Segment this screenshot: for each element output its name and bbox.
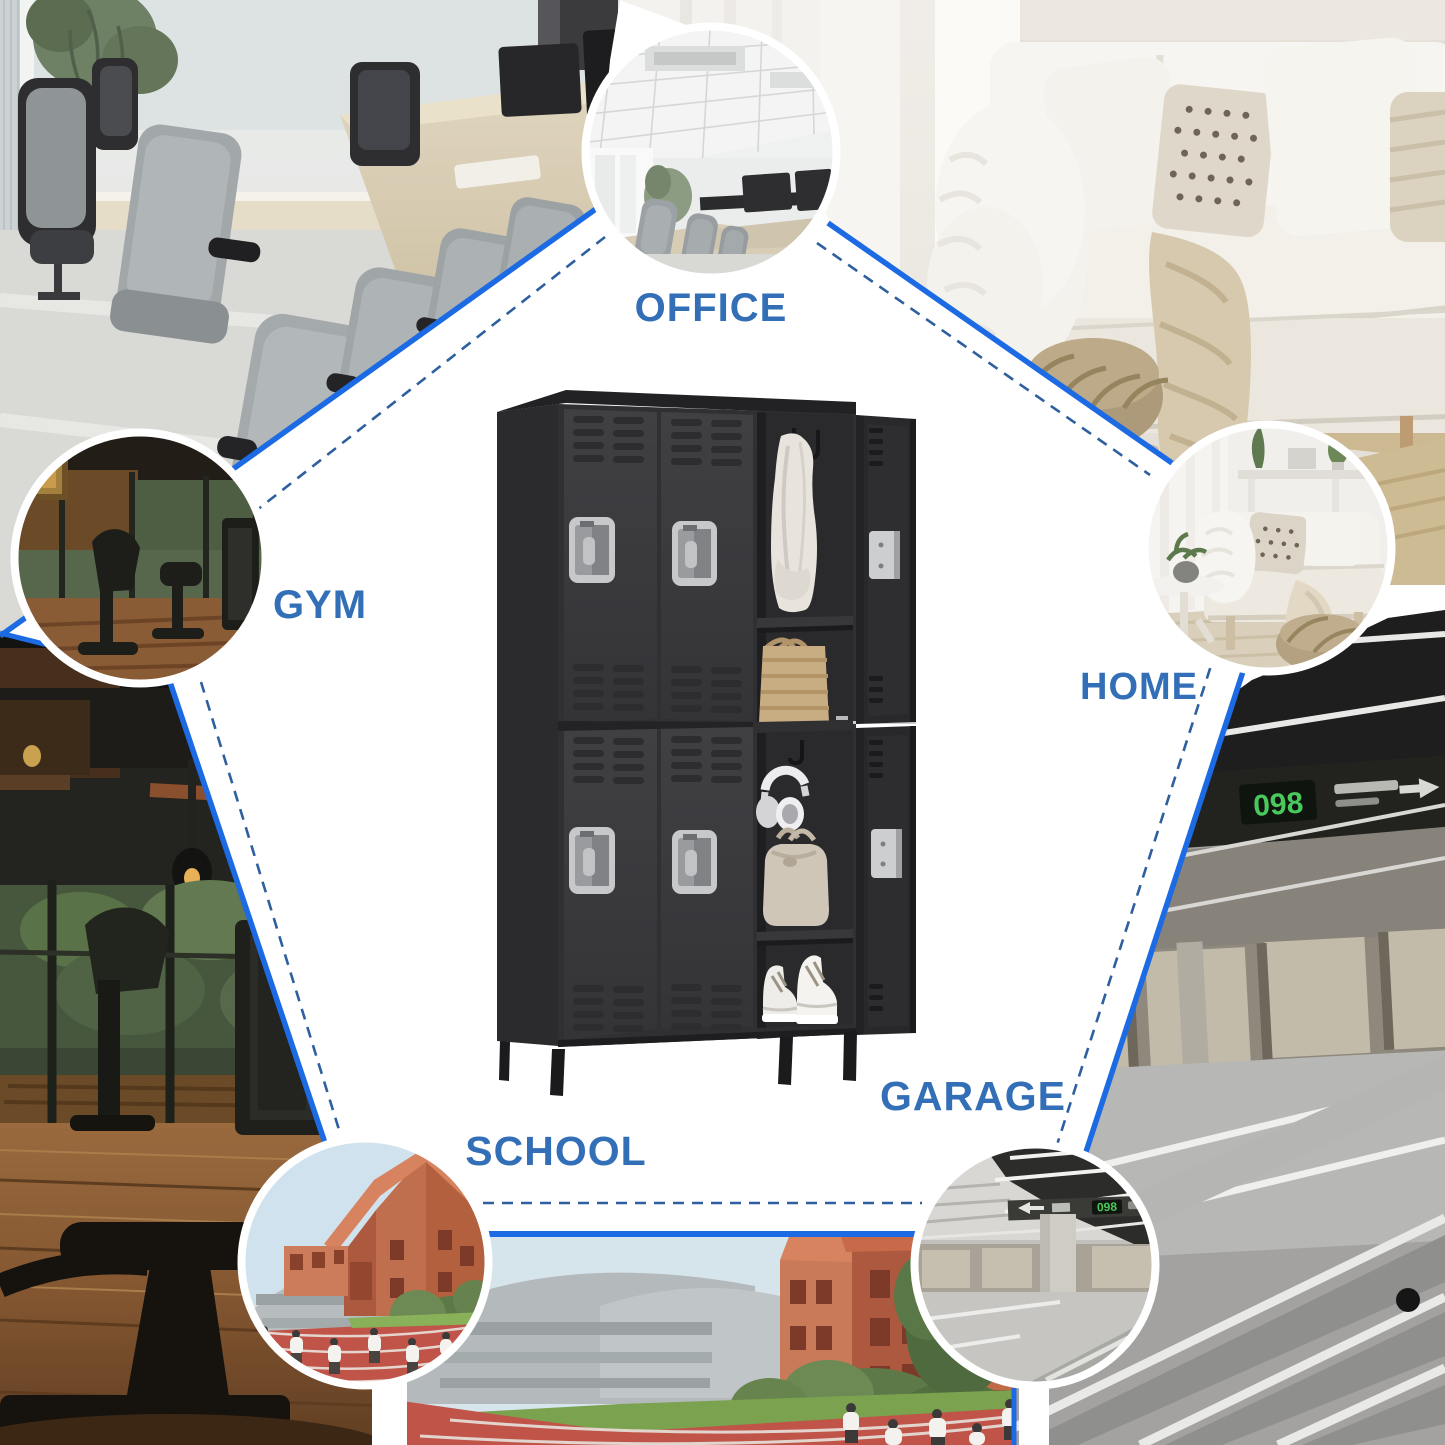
svg-text:GYM: GYM — [273, 583, 367, 627]
svg-text:098: 098 — [1252, 787, 1304, 823]
svg-text:OFFICE: OFFICE — [635, 286, 788, 330]
svg-text:HOME: HOME — [1080, 666, 1198, 708]
svg-text:SCHOOL: SCHOOL — [465, 1128, 646, 1174]
svg-text:098: 098 — [1097, 1200, 1118, 1215]
svg-text:GARAGE: GARAGE — [880, 1073, 1066, 1119]
